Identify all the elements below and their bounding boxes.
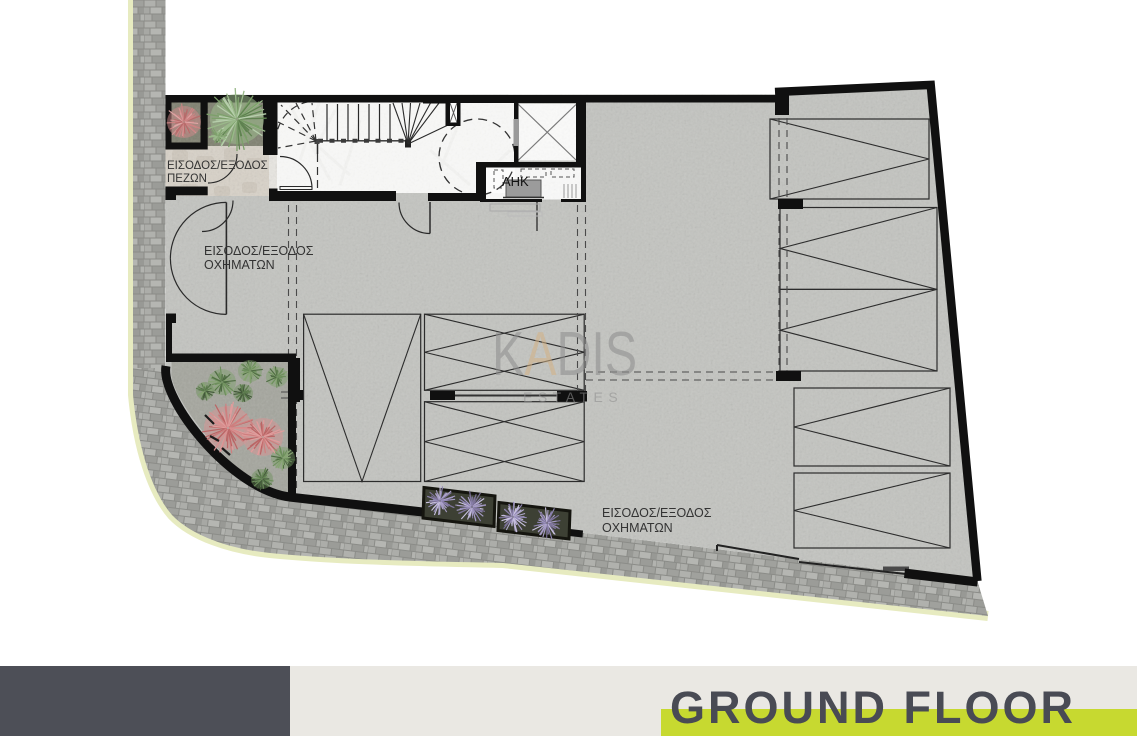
svg-text:ΠΕΖΩΝ: ΠΕΖΩΝ (167, 173, 207, 185)
svg-text:ESTATES: ESTATES (523, 389, 623, 405)
svg-text:ΕΙΣΟΔΟΣ/ΕΞΟΔΟΣ: ΕΙΣΟΔΟΣ/ΕΞΟΔΟΣ (204, 244, 314, 258)
svg-text:ΟΧΗΜΑΤΩΝ: ΟΧΗΜΑΤΩΝ (602, 521, 673, 535)
svg-text:ΑΗΚ: ΑΗΚ (502, 174, 529, 189)
svg-text:ΟΧΗΜΑΤΩΝ: ΟΧΗΜΑΤΩΝ (204, 258, 275, 272)
svg-text:ΕΙΣΟΔΟΣ/ΕΞΟΔΟΣ: ΕΙΣΟΔΟΣ/ΕΞΟΔΟΣ (167, 160, 268, 172)
svg-text:ΕΙΣΟΔΟΣ/ΕΞΟΔΟΣ: ΕΙΣΟΔΟΣ/ΕΞΟΔΟΣ (602, 506, 712, 520)
svg-text:KADIS: KADIS (492, 319, 637, 388)
svg-text:GROUND FLOOR: GROUND FLOOR (670, 682, 1076, 733)
